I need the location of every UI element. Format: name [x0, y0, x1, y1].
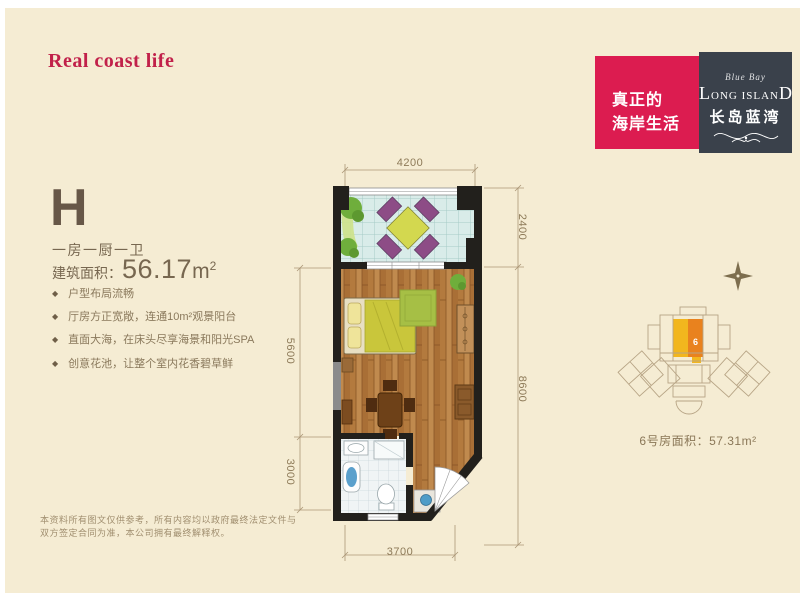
brand-name-initial: L: [699, 83, 711, 103]
dimension-left-bath: 3000: [284, 450, 296, 494]
slogan-line2: 海岸生活: [612, 113, 680, 137]
feature-item: ◆户型布局流畅: [52, 288, 282, 301]
disclaimer-line2: 双方签定合同为准，本公司拥有最终解释权。: [40, 527, 297, 540]
area-exponent: 2: [210, 259, 217, 273]
wardrobe: [457, 305, 474, 353]
brand-name-final: D: [779, 83, 793, 103]
unit-type-letter: H: [50, 182, 88, 234]
toilet: [378, 484, 395, 510]
brand-name-chinese: 长岛蓝湾: [699, 106, 792, 127]
slogan-box: 真正的 海岸生活: [595, 56, 699, 149]
diamond-bullet-icon: ◆: [52, 335, 58, 345]
diamond-bullet-icon: ◆: [52, 359, 58, 369]
slogan-line1: 真正的: [612, 89, 680, 113]
feature-item: ◆创意花池，让整个室内花香碧草鲜: [52, 358, 282, 371]
dimension-right-total: 8600: [516, 367, 528, 411]
feature-text: 户型布局流畅: [68, 288, 134, 301]
adjacent-unit-highlight: [673, 319, 688, 357]
rug: [400, 290, 436, 326]
diamond-bullet-icon: ◆: [52, 312, 58, 322]
feature-text: 直面大海，在床头尽享海景和阳光SPA: [68, 334, 254, 347]
sliding-door: [365, 262, 446, 269]
bathroom: [341, 439, 406, 513]
feature-item: ◆直面大海，在床头尽享海景和阳光SPA: [52, 334, 282, 347]
dimension-bottom: 3700: [378, 546, 422, 558]
site-key-plan: 6: [600, 255, 790, 440]
brand-logo: Blue Bay LONG ISLAND 长岛蓝湾: [699, 52, 792, 153]
dimension-left-main: 5600: [284, 329, 296, 373]
brand-script-name: Blue Bay: [699, 72, 792, 82]
bathroom-window: [368, 514, 398, 520]
cabinet: [455, 385, 474, 419]
disclaimer: 本资料所有图文仅供参考，所有内容均以政府最终法定文件与 双方签定合同为准，本公司…: [40, 514, 297, 540]
brochure-page: Real coast life 真正的 海岸生活 Blue Bay LONG I…: [0, 0, 800, 593]
feature-text: 厅房方正宽敞，连通10m²观景阳台: [68, 311, 236, 324]
brand-name-mid: ONG ISLAN: [711, 90, 779, 102]
feature-list: ◆户型布局流畅 ◆厅房方正宽敞，连通10m²观景阳台 ◆直面大海，在床头尽享海景…: [52, 288, 282, 381]
dimension-right-balcony: 2400: [516, 205, 528, 249]
area-value: 56.17: [122, 254, 192, 285]
floor-plan: [278, 150, 543, 575]
brand-name: LONG ISLAND: [699, 83, 792, 104]
page-title: Real coast life: [48, 50, 174, 73]
disclaimer-line1: 本资料所有图文仅供参考，所有内容均以政府最终法定文件与: [40, 514, 297, 527]
dimension-top: 4200: [388, 157, 432, 169]
diamond-bullet-icon: ◆: [52, 289, 58, 299]
nightstand: [342, 358, 353, 372]
area-label: 建筑面积：: [52, 263, 122, 283]
feature-text: 创意花池，让整个室内花香碧草鲜: [68, 358, 233, 371]
balcony: [339, 181, 474, 274]
site-plan-caption: 6号房面积：57.31m²: [602, 432, 794, 449]
feature-item: ◆厅房方正宽敞，连通10m²观景阳台: [52, 311, 282, 324]
flourish-ornament-icon: [699, 129, 792, 152]
unit-area: 建筑面积： 56.17 m 2: [52, 254, 216, 285]
wall-divider: [333, 362, 341, 410]
area-unit: m: [192, 260, 210, 284]
compass-icon: [723, 261, 753, 291]
unit-number-label: 6: [693, 337, 698, 347]
